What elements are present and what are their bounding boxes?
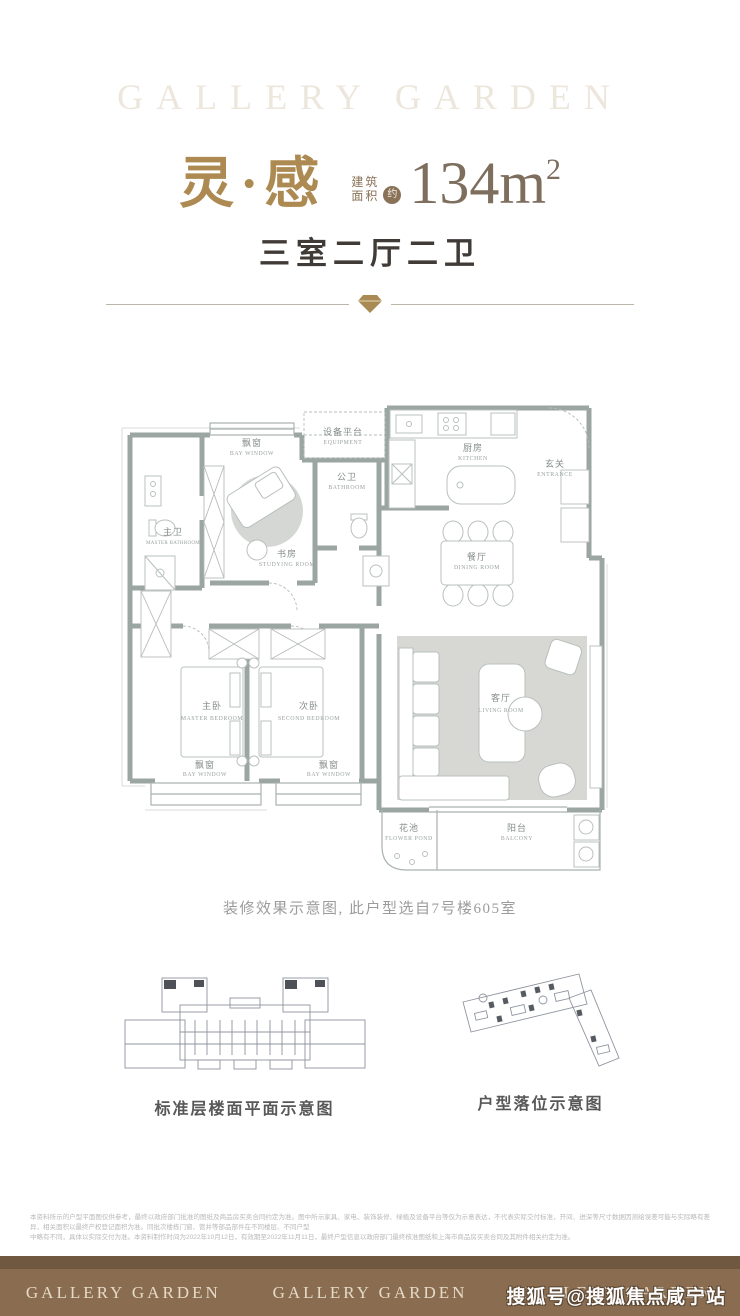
label-bay-window-left-cn: 飘窗 (195, 759, 215, 770)
label-kitchen-cn: 厨房 (463, 442, 483, 453)
area-superscript: 2 (546, 153, 561, 186)
label-master-bathroom-en: MASTER BATHROOM (146, 541, 200, 546)
kitchen-fixtures (389, 410, 517, 508)
label-entrance-en: ENTRANCE (537, 472, 573, 478)
label-equipment-cn: 设备平台 (323, 426, 363, 437)
label-studying-cn: 书房 (277, 548, 297, 559)
label-bathroom-en: BATHROOM (328, 485, 365, 491)
unit-location-svg (451, 960, 631, 1075)
label-master-bedroom-en: MASTER BEDROOM (181, 716, 243, 722)
label-master-bathroom-cn: 主卫 (163, 526, 183, 537)
approx-badge: 约 (383, 186, 401, 204)
label-kitchen-en: KITCHEN (458, 456, 488, 462)
dining-set (441, 521, 513, 606)
floorplan: 飘窗 BAY WINDOW 设备平台 EQUIPMENT 公卫 BATHROOM… (97, 378, 643, 880)
layout-subtitle: 三室二厅二卫 (0, 228, 740, 273)
label-balcony-en: BALCONY (501, 836, 533, 842)
label-bay-window-top-cn: 飘窗 (242, 437, 262, 448)
label-studying-en: STUDYING ROOM (259, 562, 315, 568)
unit-title: 灵·感 (179, 156, 325, 211)
label-second-bedroom-en: SECOND BEDROOM (278, 716, 340, 722)
label-dining-cn: 餐厅 (467, 551, 487, 562)
standard-floor-svg (110, 960, 380, 1080)
label-bay-window-left-en: BAY WINDOW (183, 772, 227, 778)
label-balcony-cn: 阳台 (507, 822, 527, 833)
plan-caption: 装修效果示意图, 此户型选自7号楼605室 (0, 897, 740, 918)
sohu-watermark: 搜狐号@搜狐焦点咸宁站 (506, 1282, 726, 1309)
label-second-bedroom-cn: 次卧 (299, 700, 319, 711)
label-dining-en: DINING ROOM (454, 565, 500, 571)
brand-watermark: GALLERY GARDEN (0, 76, 740, 118)
disclaimer-line1: 本资料所示的户型平面图仅供参考，最终以政府部门批准的图纸及商品房买卖合同约定为准… (30, 1213, 710, 1233)
area-value: 134m2 (409, 153, 561, 213)
label-equipment-en: EQUIPMENT (324, 440, 363, 446)
label-flower-pond-en: FLOWER POND (385, 836, 433, 842)
label-living-cn: 客厅 (491, 692, 511, 703)
area-prefix-line1: 建筑 (351, 175, 379, 189)
headline-row: 灵·感 建筑 面积 约 134m2 (0, 140, 740, 226)
area-prefix-line2: 面积 (351, 189, 379, 203)
disclaimer: 本资料所示的户型平面图仅供参考，最终以政府部门批准的图纸及商品房买卖合同约定为准… (30, 1213, 710, 1243)
label-flower-pond-cn: 花池 (399, 822, 419, 833)
label-living-en: LIVING ROOM (478, 708, 523, 714)
label-bay-window-top-en: BAY WINDOW (230, 451, 274, 457)
floorplan-svg: 飘窗 BAY WINDOW 设备平台 EQUIPMENT 公卫 BATHROOM… (97, 378, 643, 880)
label-entrance-cn: 玄关 (545, 458, 565, 469)
divider-line-left (106, 304, 349, 305)
standard-floor-diagram: 标准层楼面平面示意图 (102, 960, 387, 1119)
unit-location-diagram: 户型落位示意图 (443, 960, 638, 1114)
area-prefix-label: 建筑 面积 (351, 175, 379, 203)
bedroom-furniture (181, 658, 323, 766)
diamond-icon (357, 294, 383, 314)
footer-brand-1: GALLERY GARDEN (26, 1283, 221, 1303)
label-master-bedroom-cn: 主卧 (202, 700, 222, 711)
divider (0, 292, 740, 316)
unit-location-label: 户型落位示意图 (443, 1090, 638, 1114)
disclaimer-line2: 中略有不同，具体以实际交付为准。本资料制作时间为2022年10月12日，有效期至… (30, 1233, 710, 1243)
label-bathroom-cn: 公卫 (337, 472, 357, 482)
label-bay-window-mid-cn: 飘窗 (319, 759, 339, 770)
divider-line-right (391, 304, 634, 305)
footer-brand-2: GALLERY GARDEN (273, 1283, 468, 1303)
label-bay-window-mid-en: BAY WINDOW (307, 772, 351, 778)
standard-floor-label: 标准层楼面平面示意图 (102, 1095, 387, 1119)
